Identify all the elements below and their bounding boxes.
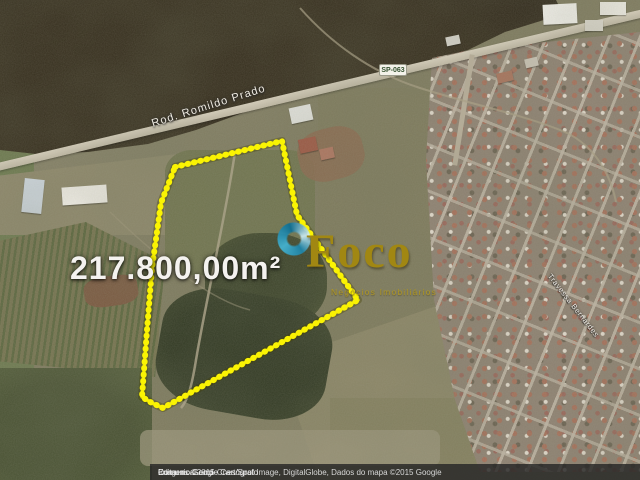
building (542, 3, 577, 25)
building (585, 20, 603, 31)
report-error-link[interactable]: Comunicar erro (158, 468, 213, 477)
building (61, 184, 107, 205)
foco-logo-text: Foco (306, 224, 413, 279)
field-patch (140, 430, 440, 466)
area-label: 217.800,00m² (70, 250, 281, 287)
foco-logo-tagline: Negócios Imobiliários (331, 287, 437, 297)
road-shield: SP-063 (379, 64, 407, 76)
attribution-bar: Imagens ©2015 Cnes/Spot Image, DigitalGl… (150, 464, 640, 480)
building (600, 2, 626, 15)
building (21, 178, 44, 214)
map-canvas[interactable]: Rod. Romildo Prado SP-063 Travessa Berna… (0, 0, 640, 480)
tree-cluster (0, 368, 152, 480)
